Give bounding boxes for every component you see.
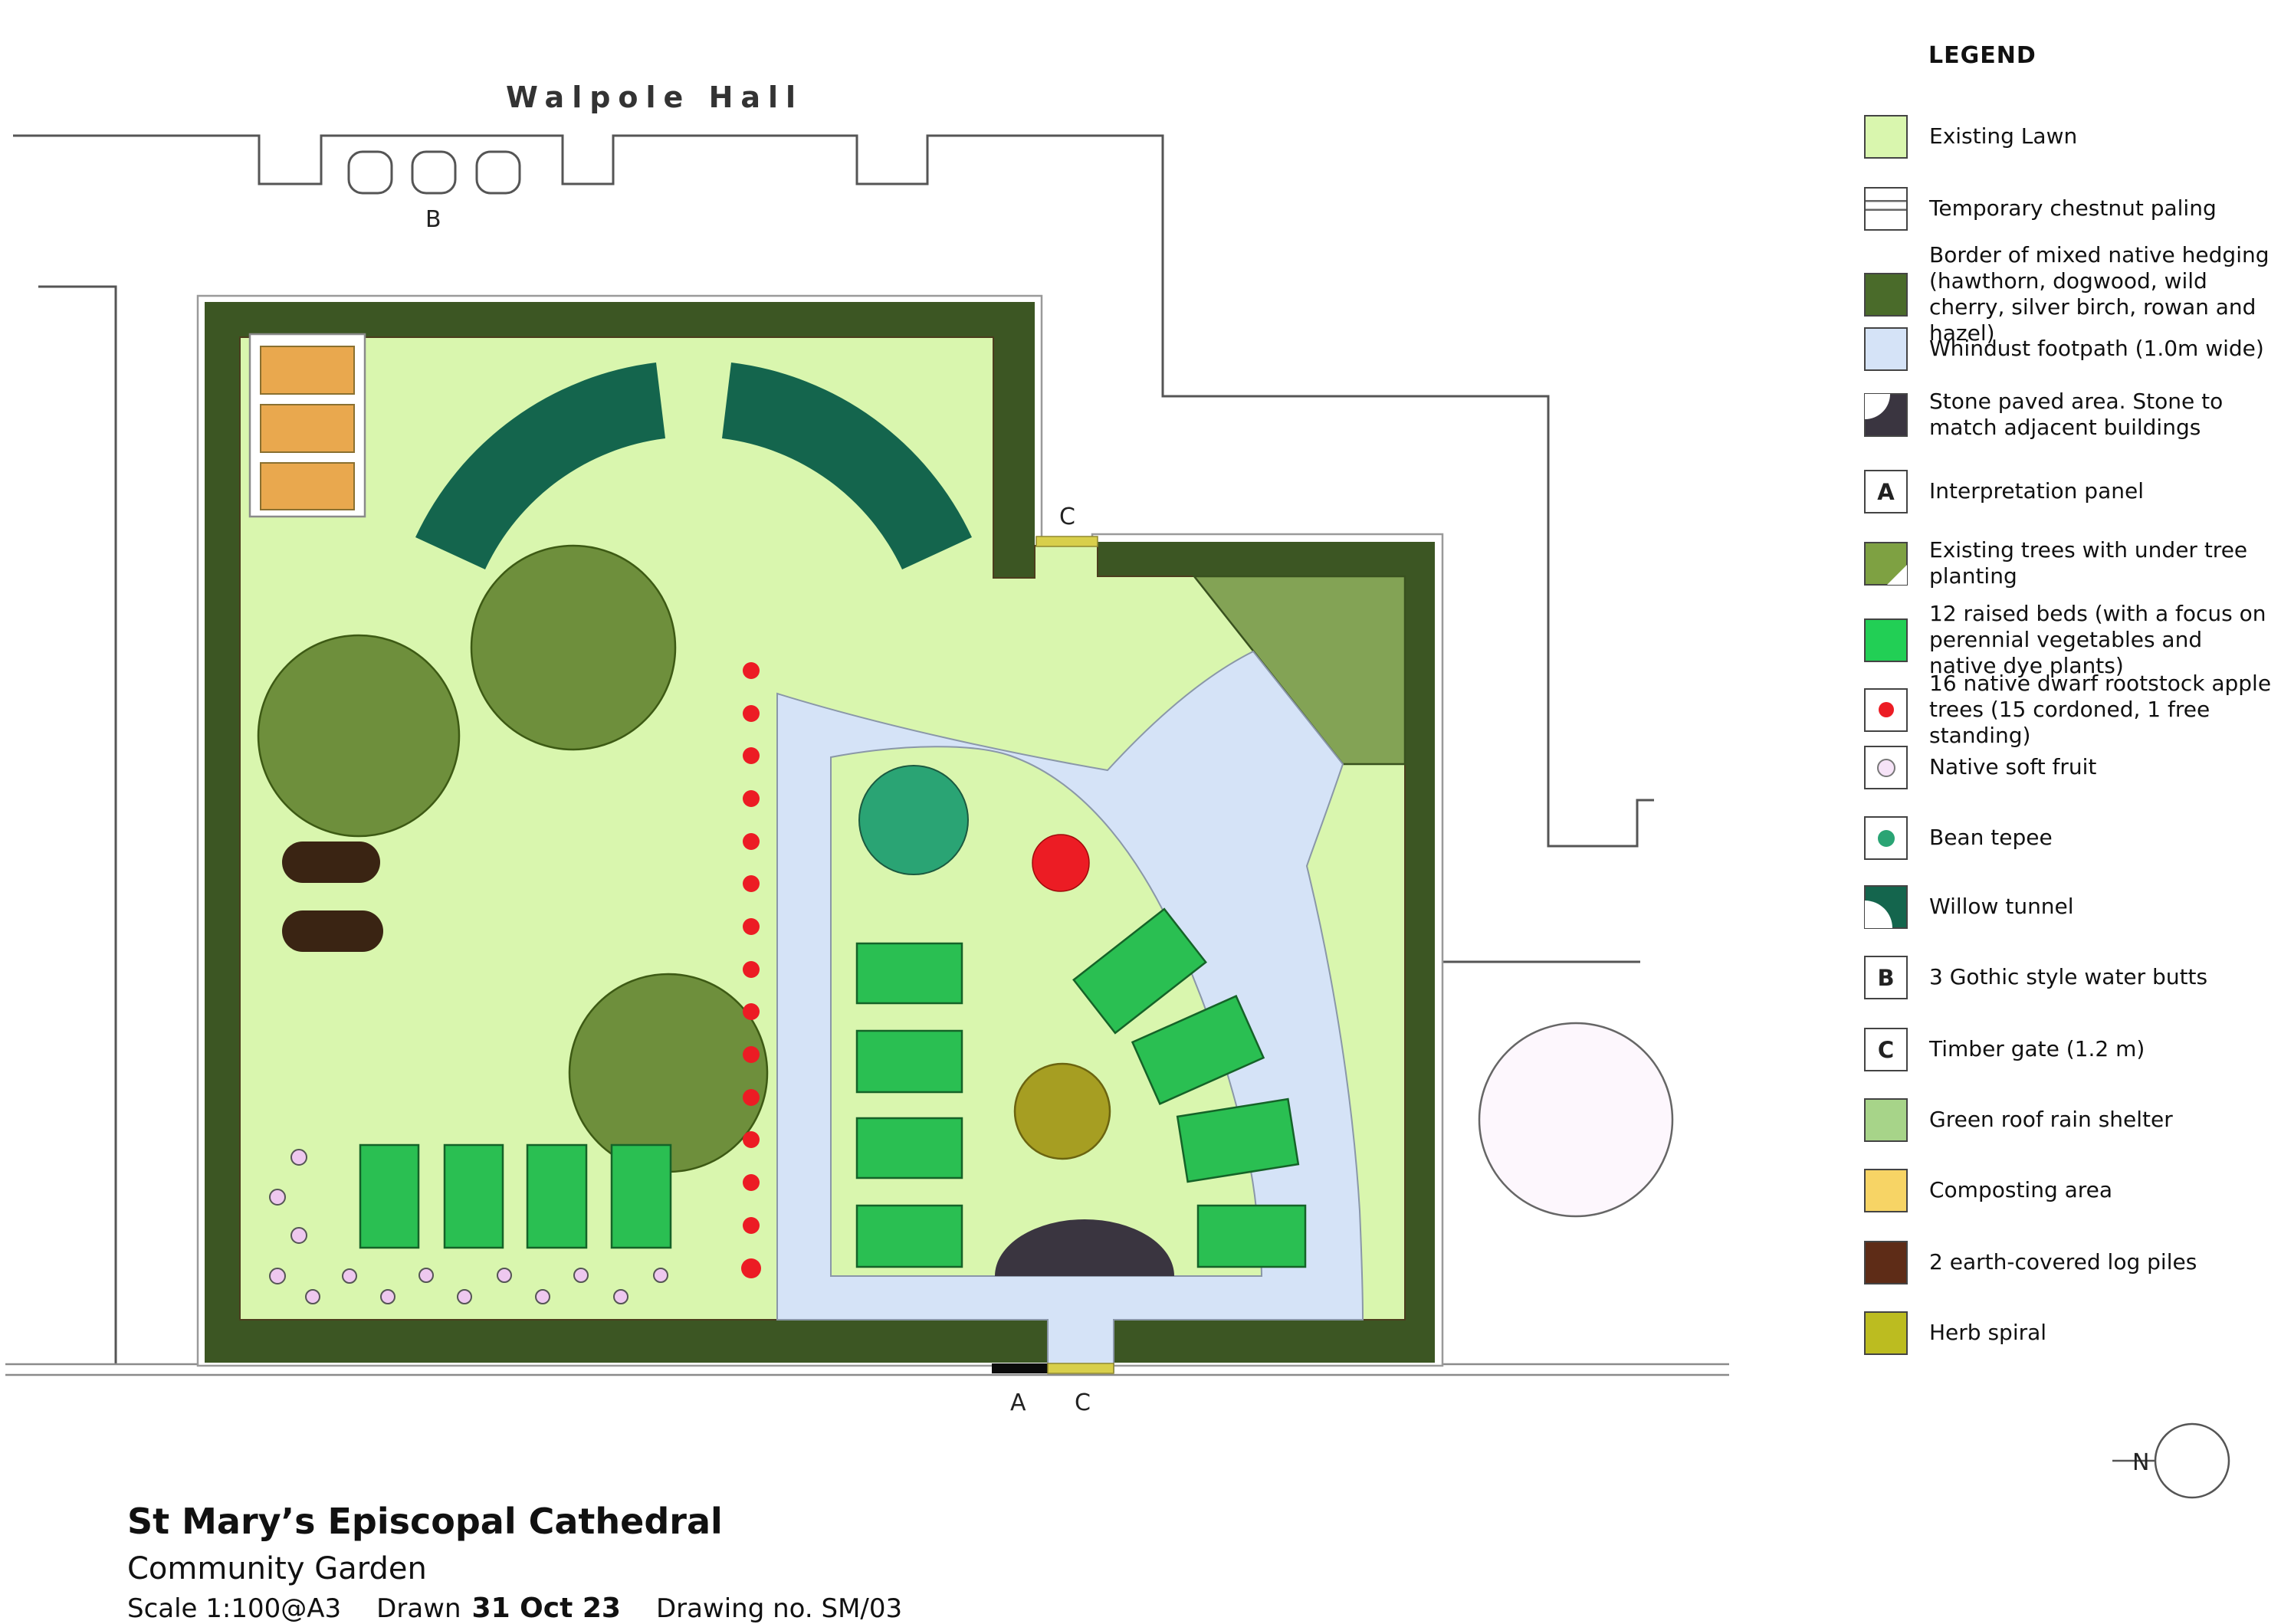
legend-swatch-fill — [1864, 1169, 1908, 1212]
legend-item-label: Herb spiral — [1929, 1320, 2276, 1346]
legend-swatch-letter: C — [1864, 1028, 1908, 1071]
timber-gate-north — [1036, 536, 1098, 546]
drawn-date: 31 Oct 23 — [472, 1593, 621, 1624]
legend-item: AInterpretation panel — [1864, 470, 2276, 513]
legend-item-label: 2 earth-covered log piles — [1929, 1249, 2276, 1275]
legend-item: Herb spiral — [1864, 1311, 2276, 1355]
legend-item: Stone paved area. Stone to match adjacen… — [1864, 389, 2276, 441]
left-building-outline — [38, 287, 116, 1363]
legend-item: Green roof rain shelter — [1864, 1098, 2276, 1142]
legend-item-label: Temporary chestnut paling — [1929, 195, 2276, 221]
bean-tepee — [859, 766, 968, 874]
title-block: St Mary’s Episcopal Cathedral Community … — [127, 1501, 902, 1624]
legend-item-label: Green roof rain shelter — [1929, 1107, 2276, 1133]
legend-swatch-paling — [1864, 187, 1908, 231]
interpretation-panel — [992, 1363, 1048, 1373]
compost-bay — [261, 463, 354, 510]
north-gate-marker: C — [1059, 504, 1075, 530]
legend-letter: A — [1877, 479, 1894, 505]
legend-letter: B — [1877, 965, 1894, 991]
cordoned-apple-tree-row — [741, 662, 761, 1278]
interpretation-panel-marker: A — [1010, 1389, 1026, 1416]
legend-swatch-fill — [1864, 1098, 1908, 1142]
legend-item: Temporary chestnut paling — [1864, 187, 2276, 231]
drawing-number: Drawing no. SM/03 — [656, 1593, 902, 1624]
gothic-water-butts — [349, 152, 520, 193]
legend-item: Willow tunnel — [1864, 885, 2276, 929]
scale-label: Scale 1:100@A3 — [127, 1593, 341, 1624]
existing-tree — [258, 635, 459, 836]
legend-swatch-fill — [1864, 1241, 1908, 1284]
legend-dot — [1877, 759, 1895, 777]
legend-item-label: Native soft fruit — [1929, 754, 2276, 780]
project-title: Community Garden — [127, 1551, 902, 1586]
legend-swatch-fill — [1864, 327, 1908, 371]
legend-item-label: 16 native dwarf rootstock apple trees (1… — [1929, 671, 2276, 749]
existing-tree — [471, 546, 675, 750]
legend-item: Bean tepee — [1864, 816, 2276, 860]
willow-corner-cut — [1865, 901, 1892, 928]
legend-title: LEGEND — [1928, 42, 2036, 69]
herb-spiral — [1015, 1064, 1110, 1159]
water-butts-marker: B — [425, 206, 441, 233]
composting-area — [250, 334, 365, 517]
legend-swatch-fill — [1864, 1311, 1908, 1355]
existing-tree-canopy — [1479, 1023, 1672, 1216]
legend-swatch-tree — [1864, 542, 1908, 586]
legend-swatch-dot — [1864, 816, 1908, 860]
south-gate-marker: C — [1075, 1389, 1091, 1416]
drawn-label: Drawn — [376, 1593, 461, 1624]
legend-item: 2 earth-covered log piles — [1864, 1241, 2276, 1284]
legend-swatch-fill — [1864, 115, 1908, 159]
compost-bay — [261, 405, 354, 452]
legend: LEGEND Existing LawnTemporary chestnut p… — [1864, 0, 2281, 1613]
tree-corner-cut — [1887, 565, 1907, 585]
legend-item: 16 native dwarf rootstock apple trees (1… — [1864, 671, 2276, 749]
legend-swatch-fill — [1864, 618, 1908, 662]
walpole-hall-label: Walpole Hall — [506, 80, 803, 114]
legend-item-label: 12 raised beds (with a focus on perennia… — [1929, 601, 2276, 679]
legend-item-label: Existing trees with under tree planting — [1929, 537, 2276, 589]
timber-gate-south — [1048, 1363, 1114, 1373]
legend-dot — [1878, 830, 1895, 847]
legend-item-label: Bean tepee — [1929, 825, 2276, 851]
legend-swatch-dot — [1864, 746, 1908, 789]
log-pile — [282, 842, 380, 883]
legend-item-label: Stone paved area. Stone to match adjacen… — [1929, 389, 2276, 441]
legend-item: Whindust footpath (1.0m wide) — [1864, 327, 2276, 371]
stone-corner-cut — [1865, 394, 1890, 419]
free-standing-apple-tree — [1032, 835, 1089, 891]
legend-item-label: Timber gate (1.2 m) — [1929, 1036, 2276, 1062]
legend-item: Native soft fruit — [1864, 746, 2276, 789]
legend-swatch-fill — [1864, 273, 1908, 317]
legend-item-label: 3 Gothic style water butts — [1929, 964, 2276, 990]
legend-item: Existing trees with under tree planting — [1864, 537, 2276, 589]
legend-item-label: Composting area — [1929, 1177, 2276, 1203]
garden-plan-page: { "plan": { "labels": { "walpole_hall": … — [0, 0, 2281, 1613]
legend-item-label: Whindust footpath (1.0m wide) — [1929, 336, 2276, 362]
legend-item-label: Willow tunnel — [1929, 894, 2276, 920]
existing-tree — [569, 974, 767, 1172]
legend-item: B3 Gothic style water butts — [1864, 956, 2276, 999]
legend-item: 12 raised beds (with a focus on perennia… — [1864, 601, 2276, 679]
legend-item-label: Interpretation panel — [1929, 478, 2276, 504]
legend-item-label: Existing Lawn — [1929, 123, 2276, 149]
legend-swatch-willow — [1864, 885, 1908, 929]
legend-letter: C — [1878, 1037, 1894, 1063]
log-pile — [282, 910, 383, 952]
legend-item: Composting area — [1864, 1169, 2276, 1212]
legend-item: Existing Lawn — [1864, 115, 2276, 159]
legend-swatch-dot — [1864, 688, 1908, 732]
drawing-meta-row: Scale 1:100@A3 Drawn 31 Oct 23 Drawing n… — [127, 1593, 902, 1624]
legend-dot — [1879, 702, 1894, 717]
legend-swatch-letter: A — [1864, 470, 1908, 513]
legend-swatch-stone — [1864, 393, 1908, 437]
legend-swatch-letter: B — [1864, 956, 1908, 999]
legend-item: CTimber gate (1.2 m) — [1864, 1028, 2276, 1071]
site-title: St Mary’s Episcopal Cathedral — [127, 1501, 902, 1542]
compost-bay — [261, 346, 354, 394]
